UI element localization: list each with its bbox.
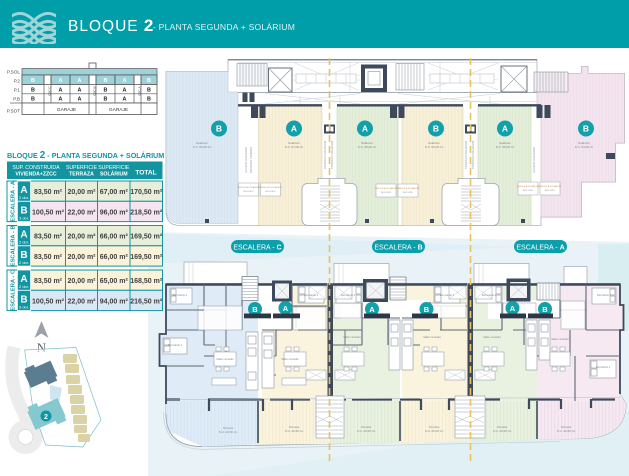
- svg-text:PERGOLA SOLARIUM: PERGOLA SOLARIUM: [539, 185, 562, 188]
- svg-text:P.1: P.1: [14, 88, 21, 93]
- svg-text:INCLUIDO: INCLUIDO: [545, 190, 556, 192]
- svg-text:B: B: [147, 78, 151, 84]
- svg-text:66,00 m²: 66,00 m²: [100, 254, 129, 261]
- svg-text:P.B: P.B: [13, 97, 20, 102]
- svg-text:PRIVATIVO SOLARIUM: PRIVATIVO SOLARIUM: [464, 141, 468, 169]
- svg-text:3 dor.: 3 dor.: [19, 304, 29, 309]
- svg-text:Salón comedor: Salón comedor: [216, 357, 234, 361]
- svg-text:83,50 m²: 83,50 m²: [34, 189, 63, 196]
- svg-text:A: A: [123, 97, 127, 103]
- svg-text:S.U. 20,00 m²: S.U. 20,00 m²: [219, 430, 238, 434]
- svg-text:96,00 m²: 96,00 m²: [100, 209, 129, 216]
- svg-text:83,50 m²: 83,50 m²: [34, 278, 63, 285]
- svg-text:2 dor.: 2 dor.: [19, 260, 29, 265]
- svg-text:INCLUIDO: INCLUIDO: [265, 191, 276, 193]
- svg-text:169,50 m²: 169,50 m²: [130, 254, 163, 261]
- svg-text:20,00 m²: 20,00 m²: [67, 189, 96, 196]
- svg-text:ESCALERA - C: ESCALERA - C: [233, 245, 281, 252]
- svg-text:ESCALERA - C: ESCALERA - C: [10, 269, 16, 311]
- svg-text:ESCALERA - A: ESCALERA - A: [516, 245, 564, 252]
- svg-text:S.U. 22,00 m²: S.U. 22,00 m²: [557, 429, 576, 433]
- svg-text:B: B: [424, 305, 430, 314]
- svg-text:ESC.A: ESC.A: [138, 86, 142, 95]
- svg-text:PRIVATIVO VIVIENDA: PRIVATIVO VIVIENDA: [249, 147, 253, 174]
- svg-text:P.SOL: P.SOL: [7, 70, 20, 75]
- svg-text:PERGOLA SOLARIUM: PERGOLA SOLARIUM: [375, 187, 398, 190]
- svg-text:A: A: [78, 78, 82, 84]
- svg-text:ESCALERA - B: ESCALERA - B: [374, 245, 422, 252]
- svg-text:Dormitorio 2: Dormitorio 2: [440, 293, 455, 297]
- svg-text:B: B: [31, 78, 35, 84]
- svg-text:22,00 m²: 22,00 m²: [67, 209, 96, 216]
- svg-text:B: B: [583, 124, 589, 134]
- svg-text:Dormitorio 2: Dormitorio 2: [341, 293, 356, 297]
- svg-text:169,50 m²: 169,50 m²: [130, 234, 163, 241]
- svg-text:S.U. 20,00 m²: S.U. 20,00 m²: [285, 429, 304, 433]
- svg-text:20,00 m²: 20,00 m²: [67, 234, 96, 241]
- svg-text:S.C. 66,00 m²: S.C. 66,00 m²: [358, 145, 377, 149]
- svg-text:A: A: [291, 124, 297, 134]
- svg-text:100,50 m²: 100,50 m²: [32, 209, 65, 216]
- svg-text:SUPERFICIE: SUPERFICIE: [66, 165, 98, 171]
- svg-text:INCLUIDO: INCLUIDO: [243, 191, 254, 193]
- svg-text:PRIVATIVO SOLARIUM: PRIVATIVO SOLARIUM: [471, 141, 475, 169]
- svg-text:A: A: [283, 304, 289, 313]
- svg-text:2 dor.: 2 dor.: [19, 284, 29, 289]
- svg-text:PERGOLA SOLARIUM: PERGOLA SOLARIUM: [397, 187, 420, 190]
- svg-text:SUPERFICIE: SUPERFICIE: [98, 165, 130, 171]
- svg-text:Dormitorio 2: Dormitorio 2: [304, 293, 319, 297]
- svg-text:TERRAZA: TERRAZA: [69, 172, 94, 178]
- svg-text:3 dor.: 3 dor.: [19, 215, 29, 220]
- svg-text:INCLUIDO: INCLUIDO: [381, 192, 392, 194]
- svg-text:20,00 m²: 20,00 m²: [67, 278, 96, 285]
- svg-text:A: A: [78, 87, 82, 93]
- svg-text:ESC.B: ESC.B: [93, 86, 97, 95]
- svg-text:SUP. CONSTRUIDA: SUP. CONSTRUIDA: [12, 165, 60, 171]
- svg-text:S.C. 67,00 m²: S.C. 67,00 m²: [285, 145, 304, 149]
- svg-text:B: B: [104, 78, 108, 84]
- svg-text:94,00 m²: 94,00 m²: [100, 298, 129, 305]
- svg-text:B: B: [147, 97, 151, 103]
- svg-text:S.U. 20,00 m²: S.U. 20,00 m²: [493, 429, 512, 433]
- svg-text:INCLUIDO: INCLUIDO: [523, 190, 534, 192]
- svg-text:S.C. 66,00 m²: S.C. 66,00 m²: [425, 145, 444, 149]
- svg-text:20,00 m²: 20,00 m²: [67, 254, 96, 261]
- svg-text:S.U. 20,00 m²: S.U. 20,00 m²: [425, 429, 444, 433]
- svg-text:TOTAL: TOTAL: [135, 170, 156, 177]
- svg-text:PERGOLA SOLARIUM: PERGOLA SOLARIUM: [517, 185, 540, 188]
- svg-text:SOLÁRIUM: SOLÁRIUM: [100, 171, 128, 178]
- svg-text:GARAJE: GARAJE: [109, 107, 128, 113]
- svg-text:170,50 m²: 170,50 m²: [130, 189, 163, 196]
- svg-text:67,00 m²: 67,00 m²: [100, 189, 129, 196]
- svg-text:A: A: [369, 305, 375, 314]
- svg-text:Salón comedor: Salón comedor: [483, 335, 501, 339]
- svg-text:S.C. 65,00 m²: S.C. 65,00 m²: [496, 145, 515, 149]
- svg-text:Dormitorio 1: Dormitorio 1: [596, 365, 611, 369]
- svg-text:2 dor.: 2 dor.: [19, 195, 29, 200]
- svg-text:168,50 m²: 168,50 m²: [130, 278, 163, 285]
- svg-text:Dormitorio 1: Dormitorio 1: [168, 343, 183, 347]
- svg-text:ESCALERA - B: ESCALERA - B: [10, 225, 16, 266]
- svg-text:66,00 m²: 66,00 m²: [100, 234, 129, 241]
- svg-text:A: A: [78, 97, 82, 103]
- svg-text:A: A: [123, 78, 127, 84]
- svg-text:B: B: [31, 97, 35, 103]
- svg-text:Dormitorio 2: Dormitorio 2: [173, 293, 188, 297]
- svg-text:A: A: [59, 87, 63, 93]
- svg-text:PERGOLA SOLARIUM: PERGOLA SOLARIUM: [237, 186, 260, 189]
- svg-text:P.2: P.2: [14, 79, 21, 84]
- svg-text:2: 2: [44, 414, 48, 421]
- svg-text:216,50 m²: 216,50 m²: [130, 298, 163, 305]
- svg-text:Salón comedor: Salón comedor: [423, 335, 441, 339]
- svg-text:A: A: [510, 304, 516, 313]
- svg-text:B: B: [252, 305, 258, 314]
- svg-text:218,50 m²: 218,50 m²: [130, 209, 163, 216]
- svg-text:B: B: [542, 305, 548, 314]
- svg-text:ACCESO SOLARIUM: ACCESO SOLARIUM: [532, 147, 536, 172]
- svg-text:100,50 m²: 100,50 m²: [32, 298, 65, 305]
- svg-text:ESCALERA - A: ESCALERA - A: [10, 180, 16, 222]
- svg-text:Salón comedor: Salón comedor: [281, 357, 299, 361]
- svg-text:Salón comedor: Salón comedor: [343, 335, 361, 339]
- svg-text:ACCESO SOLARIUM: ACCESO SOLARIUM: [244, 147, 248, 172]
- svg-text:ESC.C: ESC.C: [48, 86, 52, 96]
- svg-text:83,50 m²: 83,50 m²: [34, 234, 63, 241]
- svg-text:PRIVATIVO SOLARIUM: PRIVATIVO SOLARIUM: [323, 141, 327, 169]
- svg-text:A: A: [59, 97, 63, 103]
- svg-text:83,50 m²: 83,50 m²: [34, 254, 63, 261]
- svg-text:P.SOT: P.SOT: [7, 109, 20, 114]
- svg-text:65,00 m²: 65,00 m²: [100, 278, 129, 285]
- svg-text:PRIVATIVO SOLARIUM: PRIVATIVO SOLARIUM: [330, 141, 334, 169]
- svg-text:GARAJE: GARAJE: [57, 107, 76, 113]
- svg-text:BLOQUE 2 - PLANTA SEGUNDA + SO: BLOQUE 2 - PLANTA SEGUNDA + SOLÁRIUM: [7, 150, 164, 161]
- svg-text:22,00 m²: 22,00 m²: [67, 298, 96, 305]
- svg-text:S.U. 20,00 m²: S.U. 20,00 m²: [357, 429, 376, 433]
- svg-text:B: B: [104, 97, 108, 103]
- svg-text:Salón comedor: Salón comedor: [551, 337, 569, 341]
- svg-text:B: B: [433, 124, 439, 134]
- svg-text:B: B: [216, 124, 222, 134]
- svg-text:2 dor.: 2 dor.: [19, 240, 29, 245]
- svg-text:S.C. 94,00 m²: S.C. 94,00 m²: [575, 145, 594, 149]
- svg-text:VIVIENDA+ZZCC: VIVIENDA+ZZCC: [15, 172, 57, 178]
- svg-text:Dormitorio 2: Dormitorio 2: [597, 293, 612, 297]
- svg-text:PERGOLA SOLARIUM: PERGOLA SOLARIUM: [259, 186, 282, 189]
- svg-text:Dormitorio 2: Dormitorio 2: [482, 293, 497, 297]
- svg-text:A: A: [123, 87, 127, 93]
- svg-text:INCLUIDO: INCLUIDO: [403, 192, 414, 194]
- svg-text:BLOQUE 2: BLOQUE 2: [68, 16, 154, 35]
- svg-text:B: B: [31, 87, 35, 93]
- svg-text:B: B: [104, 87, 108, 93]
- svg-text:S.C. 66,00 m²: S.C. 66,00 m²: [193, 145, 212, 149]
- svg-text:B: B: [147, 87, 151, 93]
- svg-text:A: A: [502, 124, 508, 134]
- svg-text:A: A: [59, 78, 63, 84]
- svg-text:- PLANTA SEGUNDA + SOLÁRIUM: - PLANTA SEGUNDA + SOLÁRIUM: [153, 22, 295, 32]
- svg-text:A: A: [362, 124, 368, 134]
